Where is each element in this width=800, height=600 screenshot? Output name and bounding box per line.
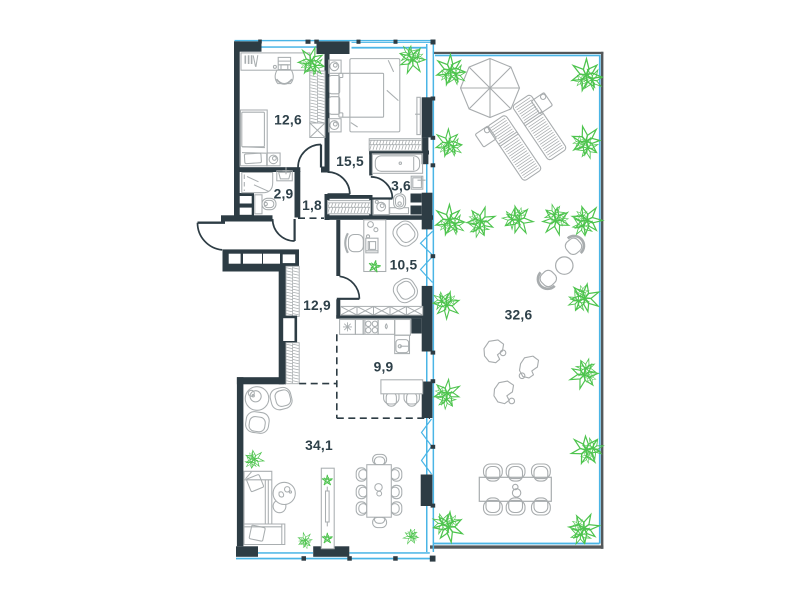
svg-text:12,6: 12,6 [274,113,302,128]
svg-text:3,6: 3,6 [391,178,411,193]
svg-text:15,5: 15,5 [336,154,364,169]
svg-text:10,5: 10,5 [390,257,418,272]
svg-text:12,9: 12,9 [303,298,331,313]
svg-text:9,9: 9,9 [374,359,394,374]
svg-text:2,9: 2,9 [274,186,294,201]
svg-text:34,1: 34,1 [305,438,333,453]
svg-text:32,6: 32,6 [505,307,533,322]
svg-text:1,8: 1,8 [302,198,322,213]
